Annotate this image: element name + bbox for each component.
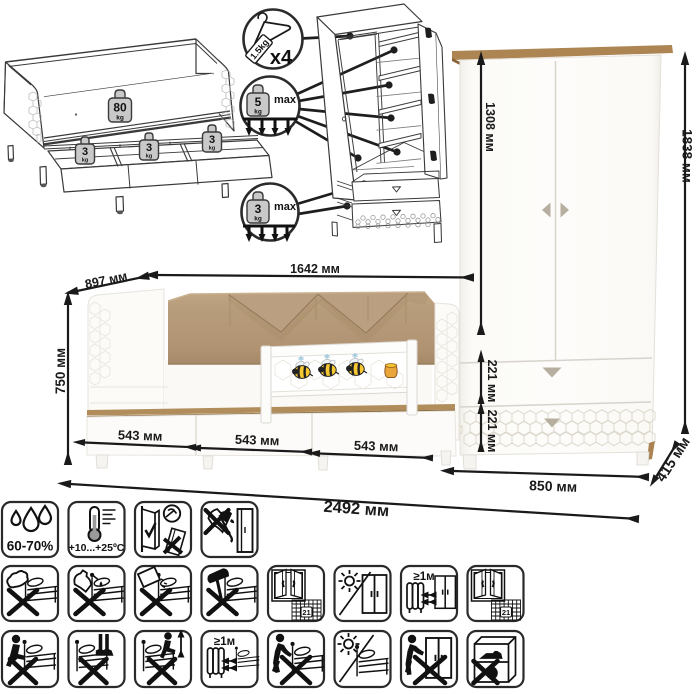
svg-text:221 мм: 221 мм bbox=[485, 410, 499, 453]
svg-text:1642 мм: 1642 мм bbox=[290, 262, 340, 276]
svg-text:80: 80 bbox=[113, 101, 127, 115]
svg-text:3: 3 bbox=[209, 134, 215, 146]
svg-text:5: 5 bbox=[255, 95, 262, 109]
svg-text:kg: kg bbox=[116, 115, 124, 122]
svg-text:max: max bbox=[274, 94, 297, 106]
svg-text:kg: kg bbox=[82, 158, 88, 164]
svg-text:543 мм: 543 мм bbox=[235, 432, 280, 449]
svg-text:+10...+25ºC: +10...+25ºC bbox=[69, 542, 125, 554]
svg-text:3: 3 bbox=[146, 142, 152, 154]
svg-text:3: 3 bbox=[82, 146, 88, 158]
svg-text:≥1м: ≥1м bbox=[214, 636, 235, 648]
svg-text:kg: kg bbox=[254, 216, 262, 223]
svg-text:kg: kg bbox=[146, 154, 152, 160]
svg-text:1308 мм: 1308 мм bbox=[483, 102, 497, 152]
svg-text:850 мм: 850 мм bbox=[529, 477, 577, 495]
svg-text:60-70%: 60-70% bbox=[7, 539, 54, 554]
svg-text:3: 3 bbox=[255, 202, 262, 216]
svg-text:≥1м: ≥1м bbox=[413, 571, 434, 583]
svg-text:750 мм: 750 мм bbox=[53, 348, 68, 394]
svg-text:kg: kg bbox=[209, 146, 215, 152]
svg-text:543 мм: 543 мм bbox=[118, 427, 163, 444]
svg-text:kg: kg bbox=[254, 109, 262, 116]
svg-text:221 мм: 221 мм bbox=[485, 360, 499, 403]
svg-text:max: max bbox=[274, 201, 297, 213]
svg-text:1838 мм: 1838 мм bbox=[680, 129, 695, 183]
svg-text:543 мм: 543 мм bbox=[354, 438, 399, 455]
svg-text:x4: x4 bbox=[270, 47, 293, 69]
